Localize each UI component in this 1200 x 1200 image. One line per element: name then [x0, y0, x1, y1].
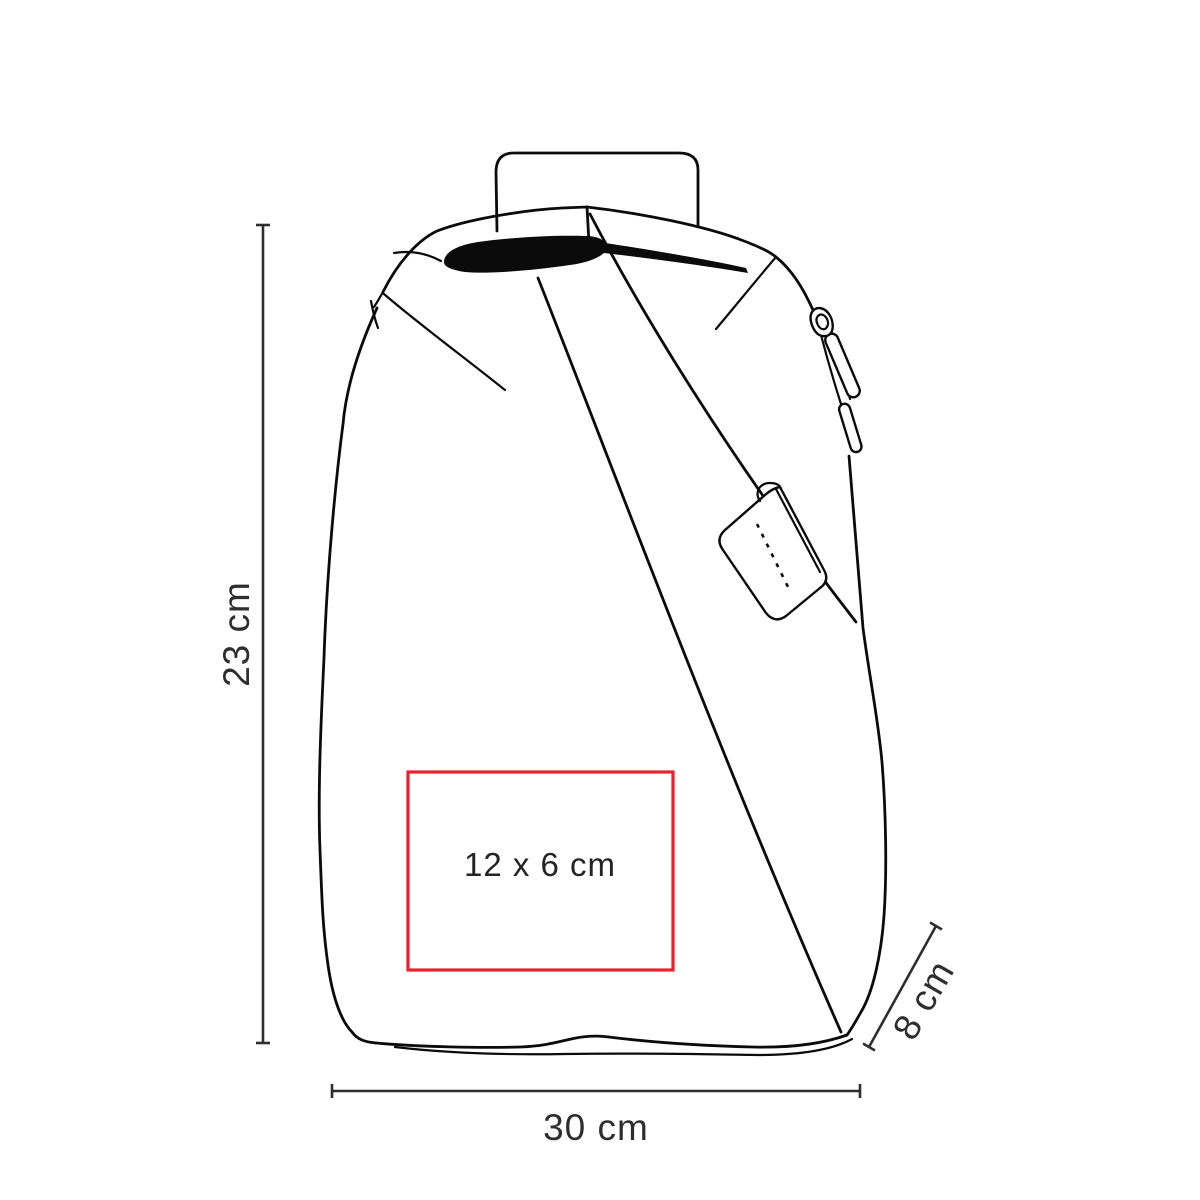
zipper-placket-end	[838, 402, 863, 453]
zipper-slider	[811, 308, 833, 336]
zipper	[811, 308, 863, 453]
height-dimension-label: 23 cm	[216, 581, 257, 687]
bag-illustration	[319, 153, 886, 1055]
print-area-label: 12 x 6 cm	[464, 846, 616, 883]
left-shoulder-tip	[374, 292, 383, 307]
height-dimension: 23 cm	[216, 225, 270, 1043]
product-dimension-diagram: 12 x 6 cm 23 cm 30 cm 8 cm	[0, 0, 1200, 1200]
bag-bottom-outer	[376, 1035, 847, 1047]
bag-left-edge	[319, 308, 377, 1043]
width-dimension: 30 cm	[332, 1084, 860, 1148]
print-area: 12 x 6 cm	[408, 772, 673, 970]
strap-lower-edge	[538, 278, 841, 1032]
opening-shadow-stripe	[444, 236, 748, 273]
left-fold-crease	[384, 294, 505, 390]
depth-dimension: 8 cm	[863, 923, 962, 1051]
bag-right-edge	[847, 456, 886, 1035]
strap-tag	[719, 483, 826, 619]
diagram-canvas: 12 x 6 cm 23 cm 30 cm 8 cm	[0, 0, 1200, 1200]
rolltop-flap-right-edge	[587, 207, 813, 310]
width-dimension-label: 30 cm	[543, 1107, 649, 1148]
shoulder-strap	[538, 214, 856, 1032]
rolltop-inner-roll-line	[394, 252, 441, 261]
